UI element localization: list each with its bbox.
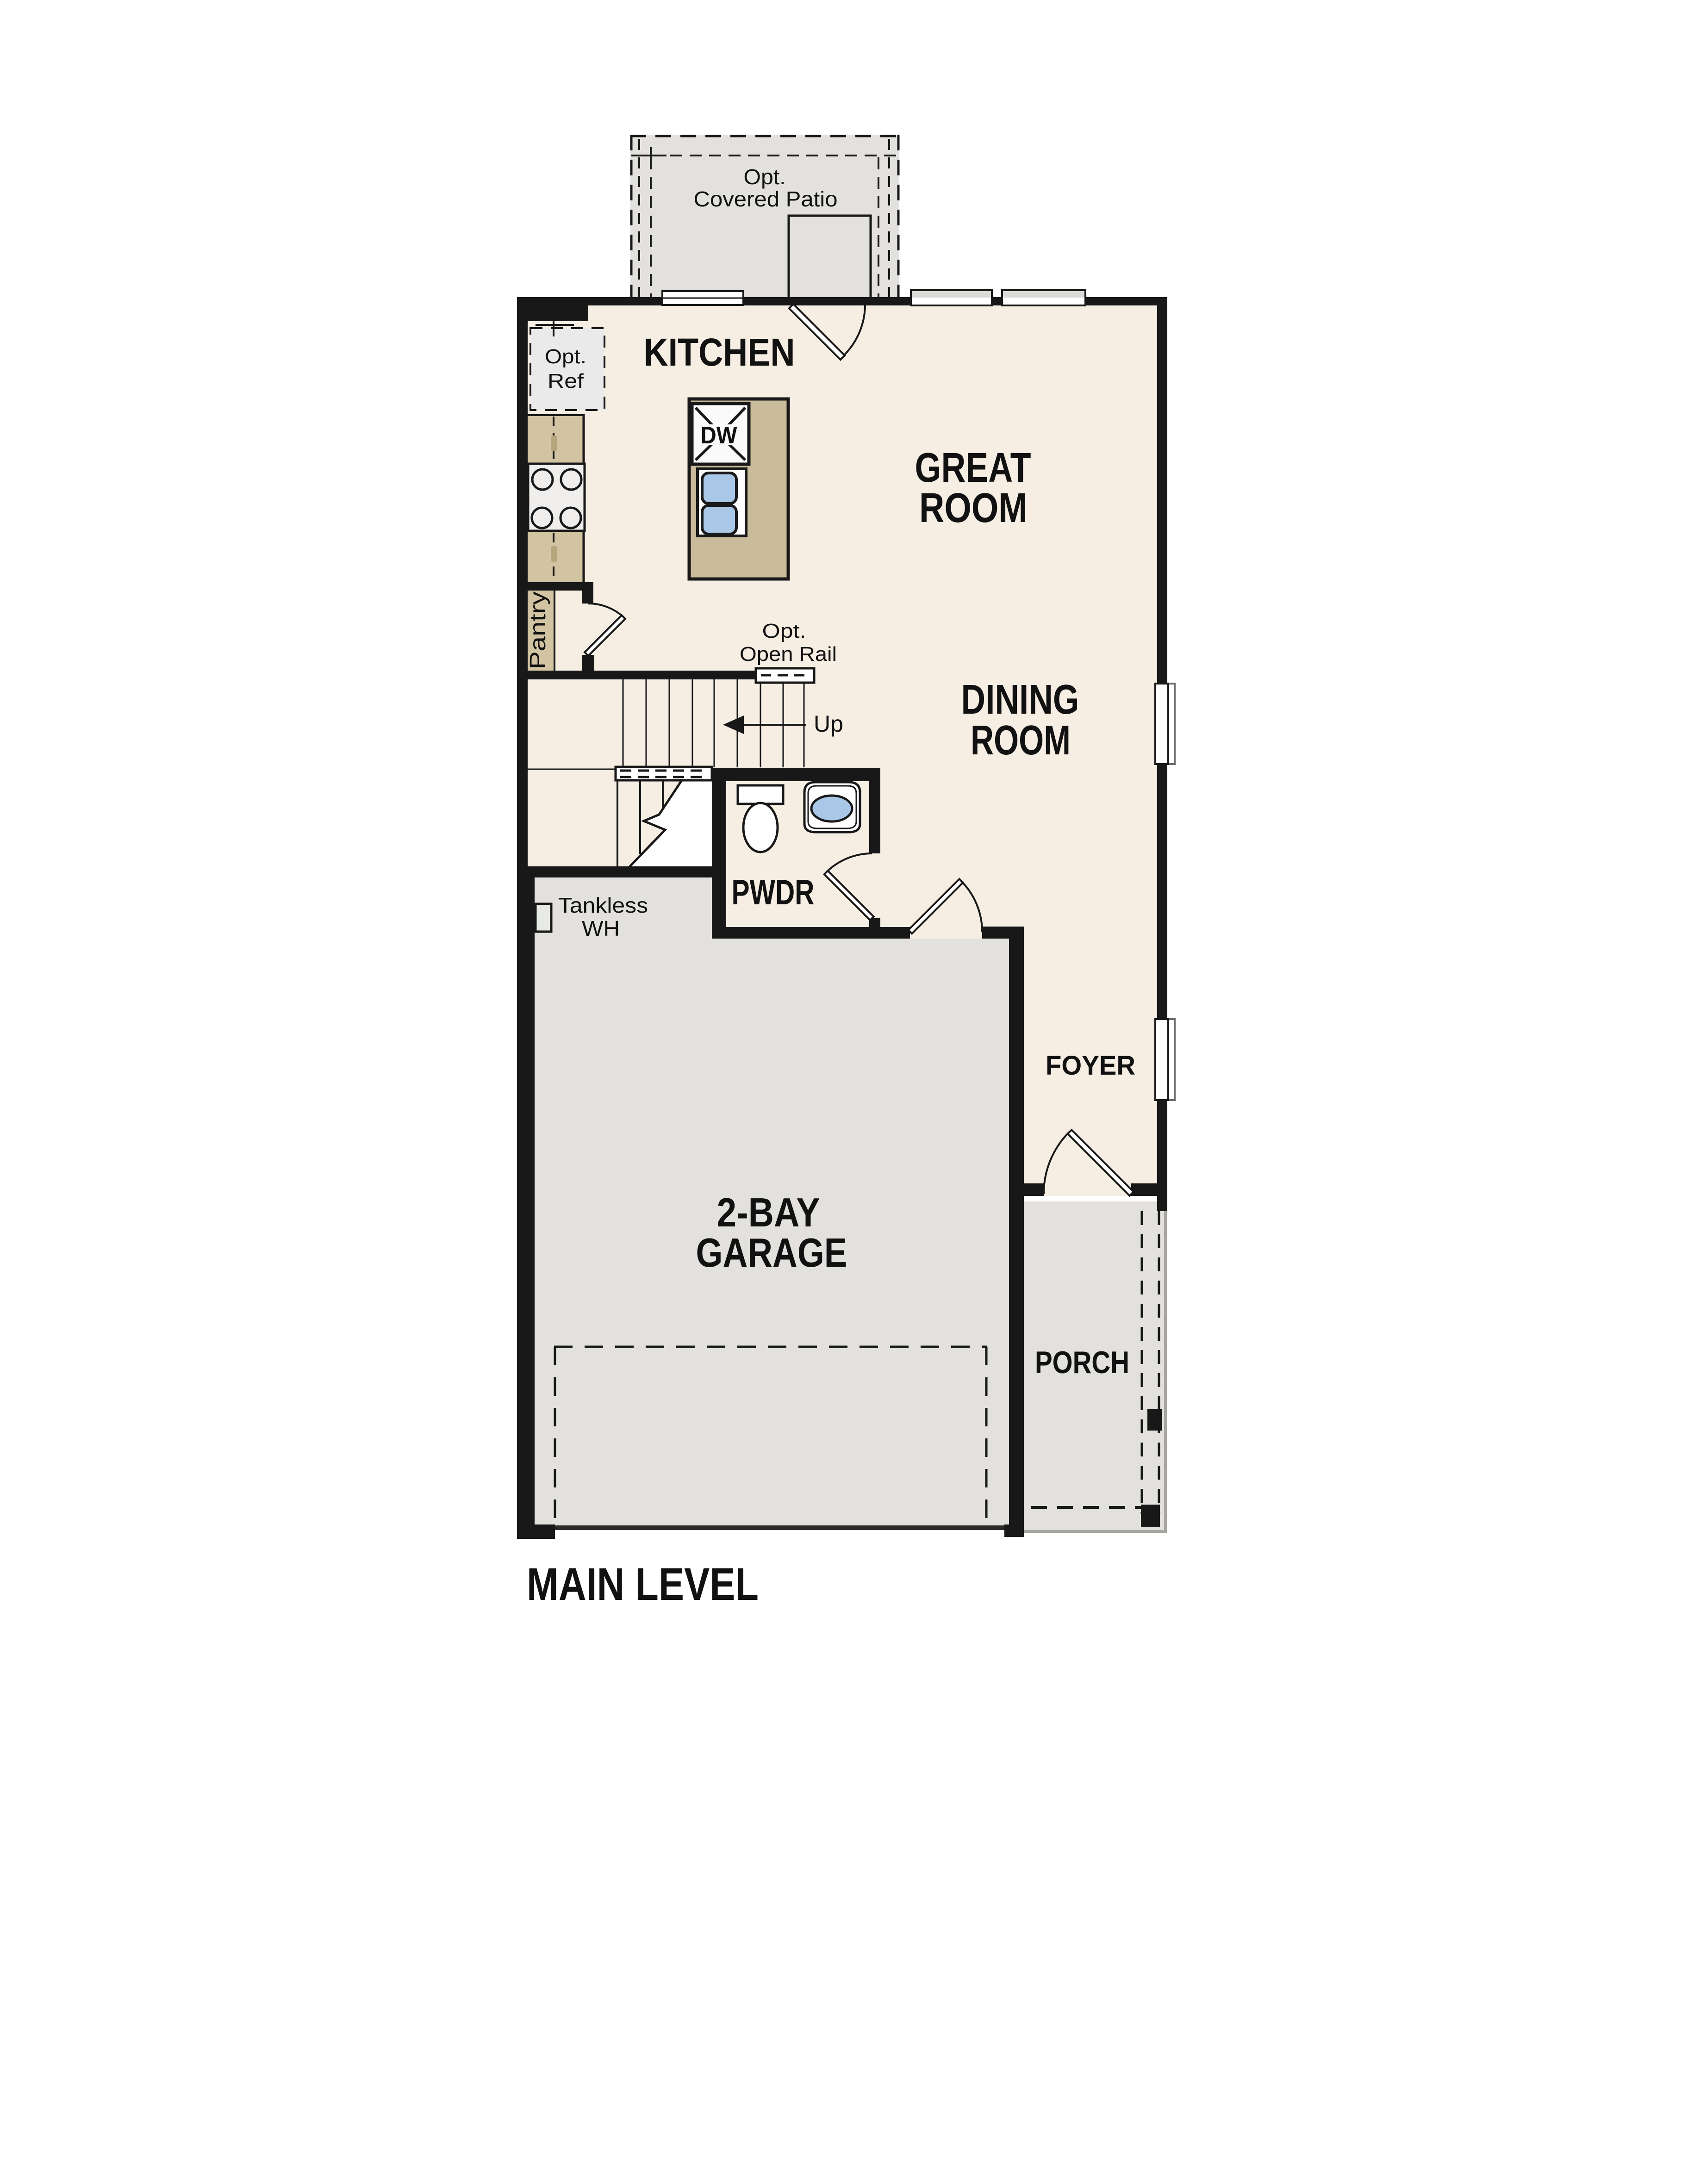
svg-text:ROOM: ROOM bbox=[919, 485, 1028, 531]
svg-text:GREAT: GREAT bbox=[915, 445, 1031, 491]
svg-text:DINING: DINING bbox=[961, 677, 1079, 723]
svg-text:PORCH: PORCH bbox=[1035, 1345, 1129, 1380]
svg-text:Pantry: Pantry bbox=[526, 591, 550, 669]
svg-text:DW: DW bbox=[701, 422, 738, 449]
svg-text:Up: Up bbox=[814, 711, 843, 737]
svg-text:GARAGE: GARAGE bbox=[696, 1230, 847, 1276]
svg-text:Opt.: Opt. bbox=[545, 345, 586, 368]
svg-text:PWDR: PWDR bbox=[732, 873, 815, 912]
svg-text:Tankless: Tankless bbox=[558, 893, 648, 917]
svg-text:Covered Patio: Covered Patio bbox=[694, 187, 838, 211]
svg-text:MAIN LEVEL: MAIN LEVEL bbox=[527, 1558, 759, 1610]
svg-text:Opt.: Opt. bbox=[762, 620, 806, 642]
svg-text:KITCHEN: KITCHEN bbox=[644, 330, 795, 374]
svg-text:Opt.: Opt. bbox=[744, 165, 786, 189]
svg-text:Ref: Ref bbox=[548, 370, 584, 392]
svg-text:Open Rail: Open Rail bbox=[740, 643, 837, 666]
svg-text:ROOM: ROOM bbox=[971, 717, 1071, 764]
svg-text:2-BAY: 2-BAY bbox=[717, 1189, 820, 1235]
svg-text:WH: WH bbox=[582, 916, 620, 940]
svg-text:FOYER: FOYER bbox=[1046, 1051, 1135, 1081]
